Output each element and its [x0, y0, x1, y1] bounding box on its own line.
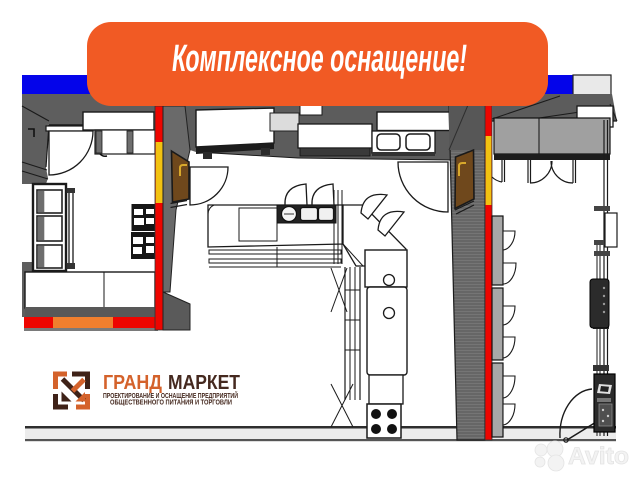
svg-text:Avito: Avito: [568, 443, 629, 470]
svg-text:ОБЩЕСТВЕННОГО ПИТАНИЯ И ТОРГОВ: ОБЩЕСТВЕННОГО ПИТАНИЯ И ТОРГОВЛИ: [110, 398, 232, 407]
svg-text:Комплексное оснащение!: Комплексное оснащение!: [172, 38, 467, 80]
